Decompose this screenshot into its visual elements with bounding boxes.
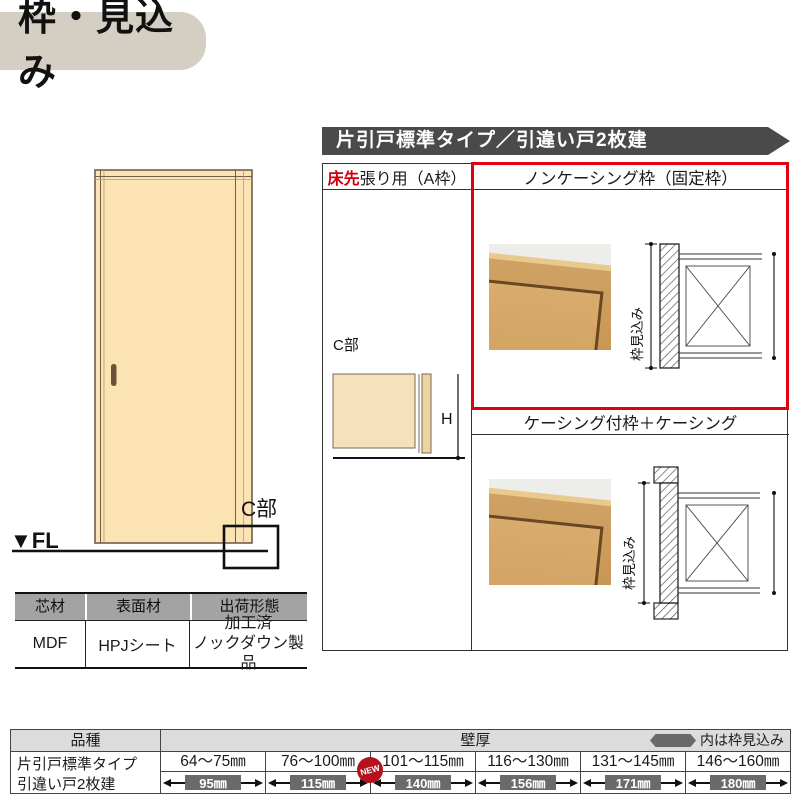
- fl-marker: ▼FL: [10, 528, 59, 553]
- arrow-right-icon: [465, 779, 473, 787]
- kind-line1: 片引戸標準タイプ: [17, 755, 160, 775]
- wall-range: 146〜160㎜: [686, 752, 790, 772]
- spec-column: 76〜100㎜ 115㎜: [266, 752, 371, 793]
- arrow-right-icon: [780, 779, 788, 787]
- material-table: 芯材 表面材 出荷形態 MDF HPJシート 加工済 ノックダウン製品: [15, 592, 307, 669]
- noncasing-section: ノンケーシング枠（固定枠） 枠見込み: [472, 164, 789, 408]
- c-part-panel: [333, 374, 415, 448]
- kind-line2: 引違い戸2枚建: [17, 775, 160, 795]
- frame-depth-legend: 内は枠見込み: [650, 730, 784, 751]
- spec-column: 146〜160㎜ 180㎜: [686, 752, 790, 793]
- kind-cell: 片引戸標準タイプ 引違い戸2枚建: [11, 752, 161, 793]
- wall-range: 101〜115㎜: [371, 752, 475, 772]
- panel-left-column: 床先張り用（A枠） C部 H: [323, 164, 472, 650]
- material-surface-value: HPJシート: [86, 621, 190, 667]
- spec-table-header-row: 品種 壁厚 内は枠見込み: [11, 730, 790, 752]
- dim-dot: [649, 366, 653, 370]
- arrow-right-icon: [255, 779, 263, 787]
- dim-dot: [642, 481, 646, 485]
- noncasing-frame-photo: [489, 244, 611, 350]
- dim-dot: [772, 356, 776, 360]
- arrow-left-icon: [478, 779, 486, 787]
- arrow-left-icon: [688, 779, 696, 787]
- arrow-left-icon: [163, 779, 171, 787]
- dim-dot: [772, 252, 776, 256]
- frame-depth-value: 115㎜: [290, 775, 346, 790]
- arrow-line: [696, 782, 710, 784]
- wall-range: 76〜100㎜: [266, 752, 370, 772]
- kind-header: 品種: [11, 730, 161, 751]
- arrow-line: [276, 782, 290, 784]
- dim-dot: [772, 591, 776, 595]
- frame-depth-value: 171㎜: [605, 775, 661, 790]
- casing-section-diagram: 枠見込み: [620, 465, 786, 621]
- wall-thickness-header: 壁厚: [460, 732, 490, 749]
- dim-dot: [649, 242, 653, 246]
- casing-top-block: [654, 467, 678, 483]
- floor-type-header: 床先張り用（A枠）: [323, 164, 471, 190]
- arrow-left-icon: [268, 779, 276, 787]
- arrow-line: [171, 782, 185, 784]
- arrow-line: [766, 782, 780, 784]
- arrow-line: [556, 782, 570, 784]
- spec-table: 品種 壁厚 内は枠見込み 片引戸標準タイプ 引違い戸2枚建 64〜75㎜: [10, 729, 791, 794]
- spec-table-body-row: 片引戸標準タイプ 引違い戸2枚建 64〜75㎜ 95㎜ 76〜100㎜: [11, 752, 790, 793]
- arrow-line: [486, 782, 500, 784]
- material-shipping-value: 加工済 ノックダウン製品: [190, 621, 307, 667]
- depth-dim-label: 枠見込み: [630, 307, 645, 361]
- frame-depth-arrow: 156㎜: [476, 772, 580, 793]
- floor-type-header-red: 床先: [328, 165, 360, 189]
- arrow-line: [661, 782, 675, 784]
- c-part-detail-label: C部: [333, 337, 359, 354]
- door-figure: ▼FL C部: [0, 148, 310, 580]
- casing-title: ケーシング付枠＋ケーシング: [472, 409, 789, 435]
- frame-depth-value: 95㎜: [185, 775, 241, 790]
- door-handle: [111, 364, 117, 386]
- spec-column: 64〜75㎜ 95㎜: [161, 752, 266, 793]
- wall-range: 131〜145㎜: [581, 752, 685, 772]
- arrow-line: [591, 782, 605, 784]
- frame-depth-arrow: 115㎜: [266, 772, 370, 793]
- frame-bar-hatched: [660, 483, 678, 603]
- wall-range: 116〜130㎜: [476, 752, 580, 772]
- frame-depth-arrow: 180㎜: [686, 772, 790, 793]
- h-dim-label: H: [441, 411, 453, 428]
- legend-text: 内は枠見込み: [700, 730, 784, 751]
- floor-type-header-rest: 張り用（A枠）: [360, 165, 467, 189]
- panel-header-bar: 片引戸標準タイプ／引違い戸2枚建: [322, 127, 790, 155]
- c-part-detail-drawing: C部 H: [327, 336, 469, 476]
- frame-depth-value: 156㎜: [500, 775, 556, 790]
- spec-column: 101〜115㎜ 140㎜: [371, 752, 476, 793]
- panel-right-column: ノンケーシング枠（固定枠） 枠見込み: [472, 164, 789, 650]
- dim-dot: [642, 601, 646, 605]
- frame-depth-arrow: 171㎜: [581, 772, 685, 793]
- material-header-surface: 表面材: [87, 594, 190, 620]
- c-part-edge-strip: [422, 374, 431, 453]
- casing-section: ケーシング付枠＋ケーシング 枠見込み: [472, 408, 789, 652]
- noncasing-title: ノンケーシング枠（固定枠）: [472, 164, 789, 190]
- frame-depth-arrow: 95㎜: [161, 772, 265, 793]
- frame-depth-value: 140㎜: [395, 775, 451, 790]
- panel-box: 床先張り用（A枠） C部 H ノンケーシング枠（固定枠）: [322, 163, 788, 651]
- page-title: 枠・見込み: [0, 0, 206, 96]
- frame-bar-hatched: [660, 244, 679, 368]
- frame-depth-arrow: 140㎜: [371, 772, 475, 793]
- casing-bottom-block: [654, 603, 678, 619]
- material-core-value: MDF: [15, 621, 86, 667]
- page: 枠・見込み ▼FL C部 芯材 表面材 出荷形態 MDF HPJシート 加工済 …: [0, 0, 800, 800]
- frame-depth-value: 180㎜: [710, 775, 766, 790]
- depth-dim-label: 枠見込み: [622, 536, 637, 590]
- spec-column: 131〜145㎜ 171㎜: [581, 752, 686, 793]
- wall-thickness-header-zone: 壁厚 内は枠見込み: [161, 730, 790, 751]
- arrow-line: [451, 782, 465, 784]
- arrow-line: [381, 782, 395, 784]
- material-table-value-row: MDF HPJシート 加工済 ノックダウン製品: [15, 620, 307, 667]
- material-header-core: 芯材: [15, 594, 85, 620]
- c-part-label: C部: [241, 498, 277, 521]
- arrow-right-icon: [570, 779, 578, 787]
- noncasing-section-diagram: 枠見込み 壁厚: [624, 236, 784, 376]
- hexagon-legend-icon: [650, 734, 696, 747]
- casing-frame-photo: [489, 479, 611, 585]
- spec-columns: 64〜75㎜ 95㎜ 76〜100㎜ 115㎜: [161, 752, 790, 793]
- arrow-left-icon: [583, 779, 591, 787]
- page-title-plate: 枠・見込み: [0, 12, 206, 70]
- arrow-line: [241, 782, 255, 784]
- arrow-right-icon: [675, 779, 683, 787]
- wall-range: 64〜75㎜: [161, 752, 265, 772]
- spec-column: 116〜130㎜ 156㎜: [476, 752, 581, 793]
- dim-dot: [772, 491, 776, 495]
- arrow-line: [346, 782, 360, 784]
- door-panel: [95, 170, 252, 543]
